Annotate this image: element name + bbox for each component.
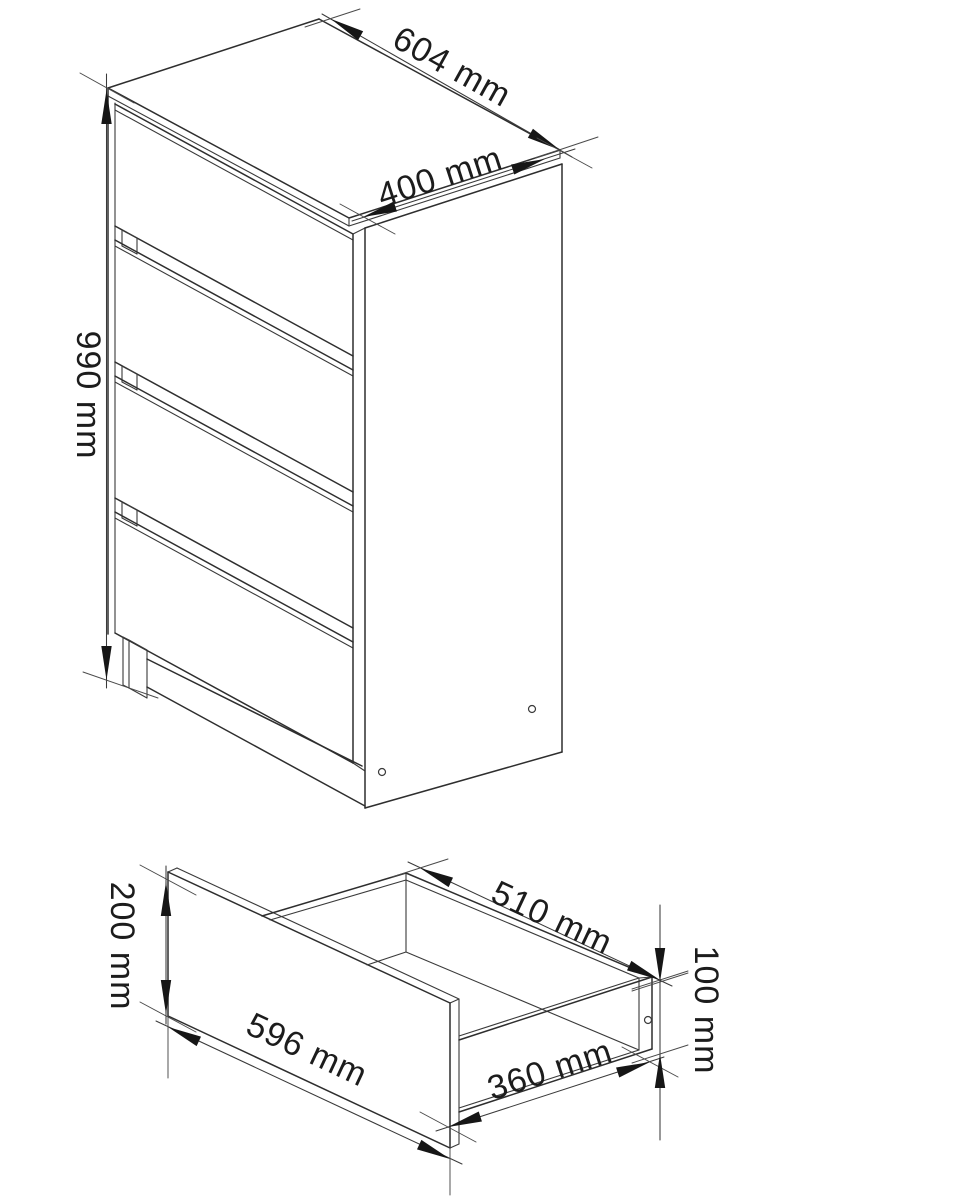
dim-drawer-front-width: 596 mm — [156, 1006, 462, 1195]
cabinet-base-foot — [123, 637, 365, 806]
dim-drawer-front-height: 200 mm — [103, 865, 196, 1032]
cabinet-drawer-front-3 — [115, 376, 353, 628]
cabinet-front-left-edges — [108, 88, 115, 634]
cabinet-drawer-front-4 — [115, 512, 353, 763]
cabinet-figure: 990 mm 604 mm 400 mm — [69, 9, 598, 808]
dim-drawer-inner-width: 510 mm — [392, 859, 688, 989]
cabinet-front-right-stile — [353, 228, 365, 771]
screw-hole — [645, 1017, 652, 1024]
cabinet-drawer-front-1 — [115, 104, 353, 356]
screw-hole — [379, 769, 386, 776]
cabinet-top-face — [108, 19, 560, 226]
dim-label-drawer-inner-width: 510 mm — [486, 874, 619, 963]
dim-cabinet-width: 604 mm — [305, 9, 598, 158]
dim-label-drawer-box-height: 100 mm — [687, 946, 725, 1075]
cabinet-drawer-front-2 — [115, 240, 353, 492]
dim-cabinet-height: 990 mm — [69, 73, 158, 698]
cabinet-side-panel — [365, 164, 562, 808]
technical-drawing-canvas: 990 mm 604 mm 400 mm — [0, 0, 963, 1200]
dim-label-drawer-front-height: 200 mm — [103, 882, 141, 1011]
screw-hole — [529, 706, 536, 713]
technical-drawing-page: 990 mm 604 mm 400 mm — [0, 0, 963, 1200]
drawer-figure: 200 mm 596 mm 510 mm 360 mm — [103, 859, 725, 1195]
drawer-front-panel — [168, 868, 459, 1148]
dim-label-cabinet-height: 990 mm — [69, 331, 107, 460]
dim-label-drawer-side-depth: 360 mm — [483, 1032, 617, 1108]
